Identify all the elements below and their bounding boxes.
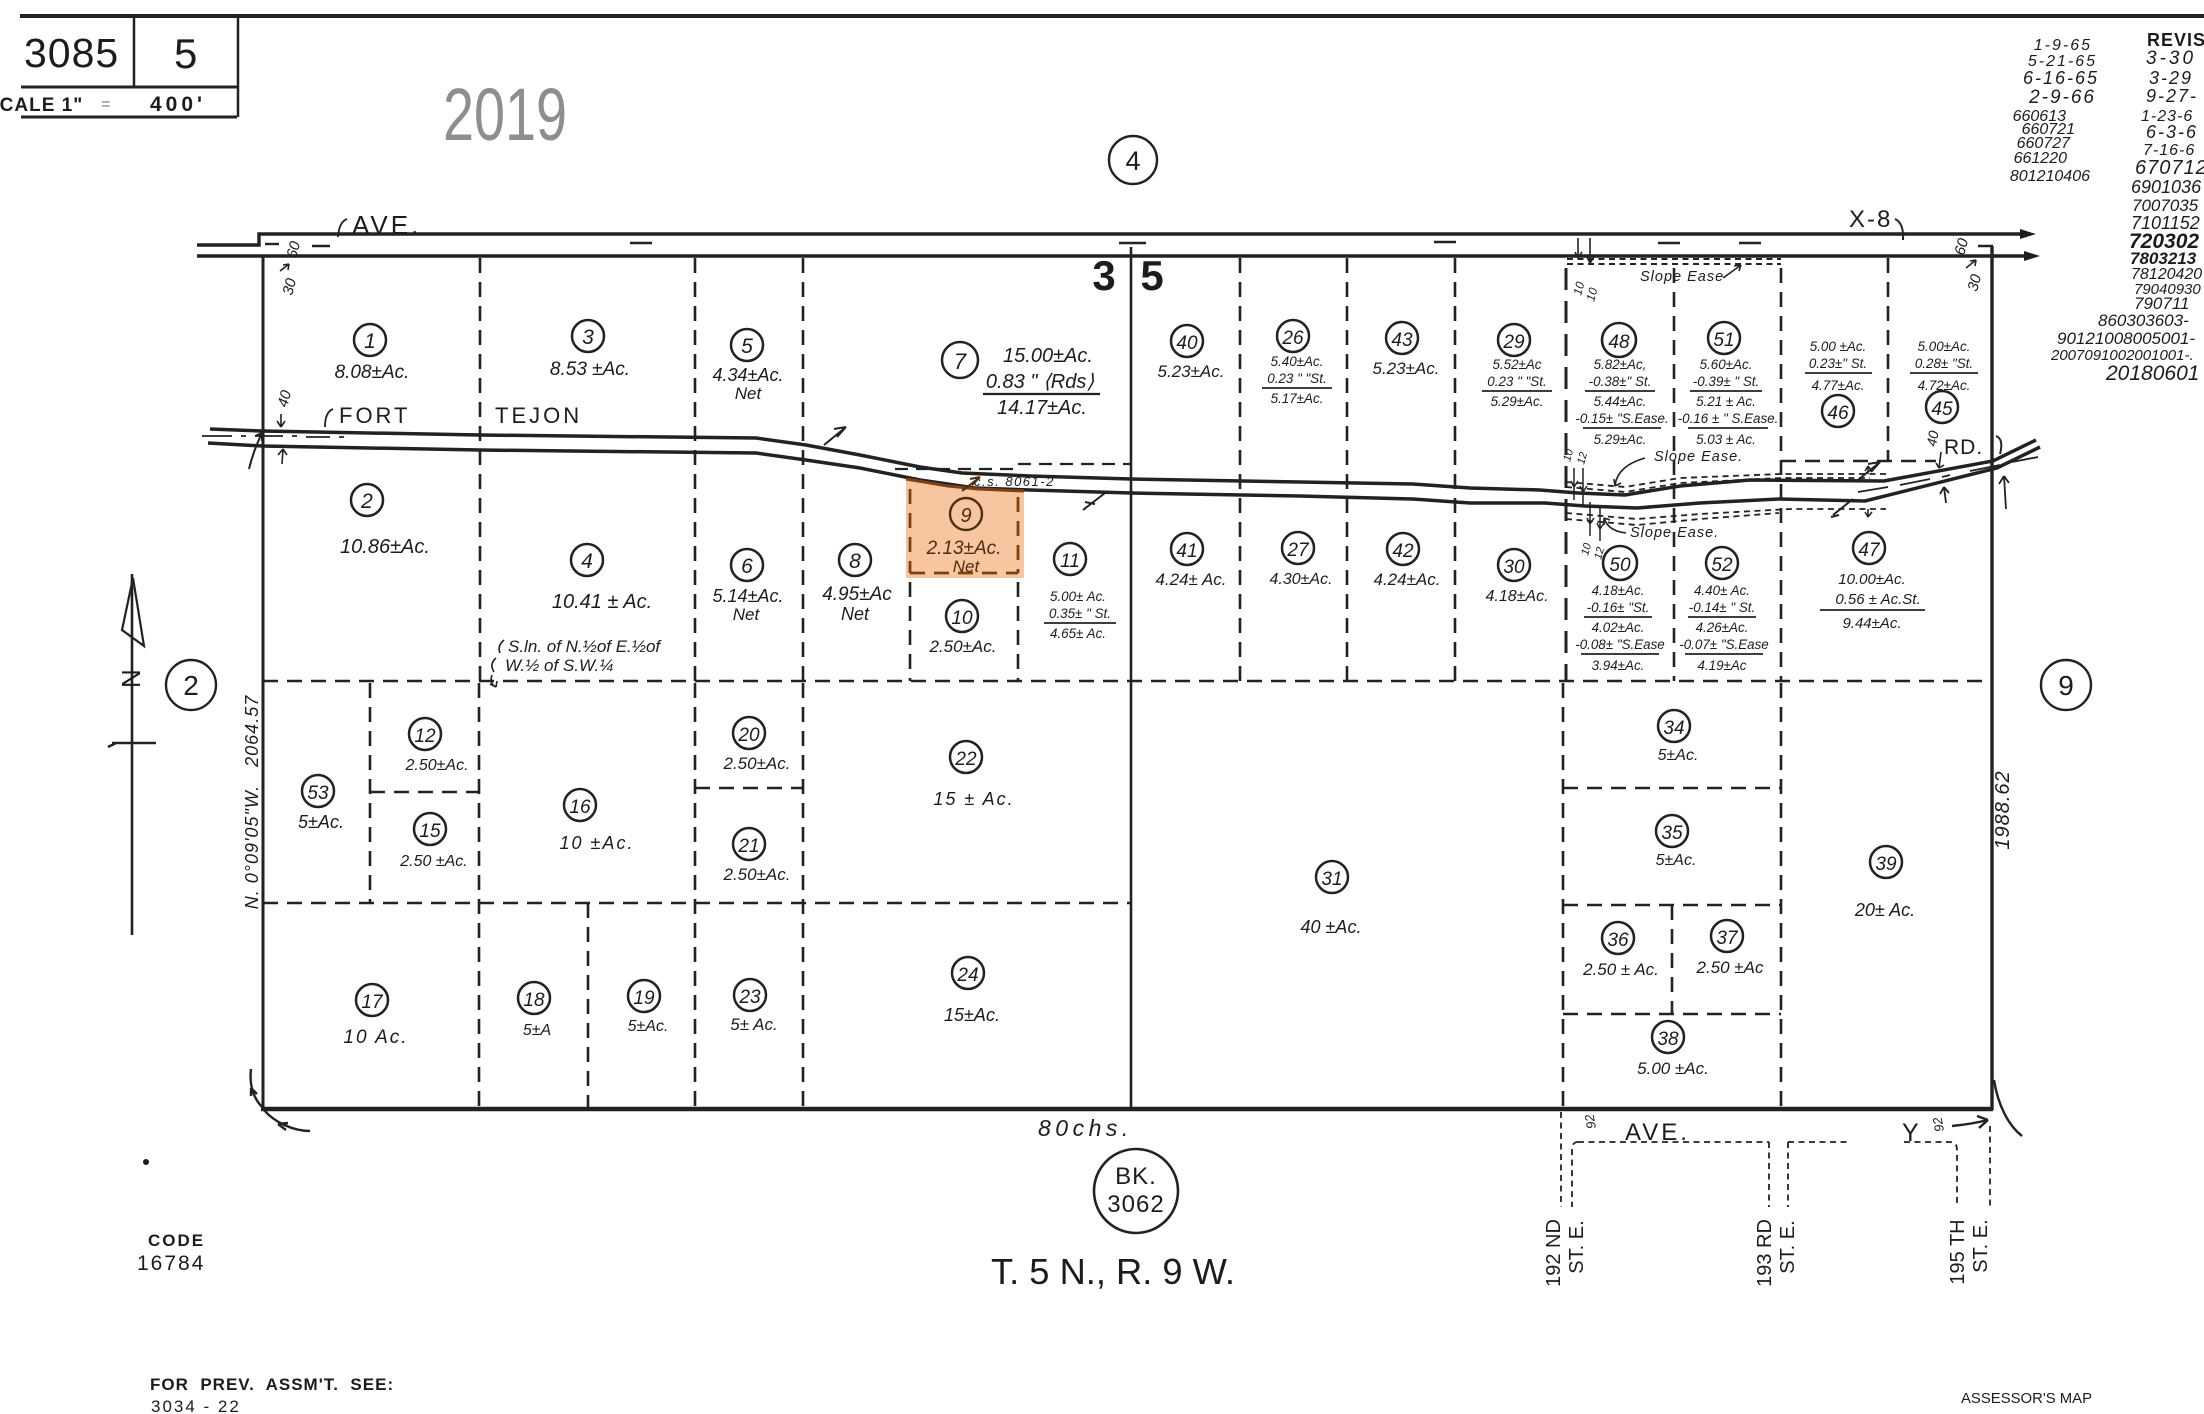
svg-text:c.s. 8061-2: c.s. 8061-2 <box>974 474 1055 489</box>
svg-text:AVE.: AVE. <box>352 210 421 240</box>
svg-text:23: 23 <box>738 987 761 1008</box>
svg-text:5.52±Ac: 5.52±Ac <box>1492 357 1541 372</box>
svg-text:7: 7 <box>954 349 967 374</box>
svg-text:15.00±Ac.: 15.00±Ac. <box>1003 345 1093 367</box>
svg-text:39: 39 <box>1875 854 1897 875</box>
svg-text:3: 3 <box>1092 252 1115 299</box>
svg-text:5.21 ± Ac.: 5.21 ± Ac. <box>1696 394 1756 409</box>
svg-text:5±Ac.: 5±Ac. <box>298 812 344 832</box>
svg-text:34: 34 <box>1663 718 1684 739</box>
svg-text:4.24± Ac.: 4.24± Ac. <box>1155 570 1226 589</box>
svg-text:5.00 ±Ac.: 5.00 ±Ac. <box>1810 339 1866 354</box>
svg-text:192 ND: 192 ND <box>1543 1219 1565 1287</box>
svg-text:4.26±Ac.: 4.26±Ac. <box>1696 620 1749 635</box>
svg-text:27: 27 <box>1286 540 1310 561</box>
svg-text:-0.08± "S.Ease: -0.08± "S.Ease <box>1575 637 1665 652</box>
svg-text:11: 11 <box>1060 551 1080 572</box>
svg-text:5.14±Ac.: 5.14±Ac. <box>713 586 784 606</box>
svg-text:4.34±Ac.: 4.34±Ac. <box>713 365 784 385</box>
svg-text:52: 52 <box>1711 555 1733 576</box>
svg-text:36: 36 <box>1607 930 1629 951</box>
svg-text:90121008005001-: 90121008005001- <box>2057 329 2195 348</box>
svg-text:35: 35 <box>1661 823 1683 844</box>
svg-text:2.13±Ac.: 2.13±Ac. <box>926 538 1002 559</box>
svg-text:195 TH: 195 TH <box>1947 1219 1969 1284</box>
svg-text:10 Ac.: 10 Ac. <box>343 1027 408 1048</box>
svg-text:45: 45 <box>1931 399 1953 420</box>
svg-text:0.28± "St.: 0.28± "St. <box>1915 356 1973 371</box>
svg-text:-0.07± "S.Ease: -0.07± "S.Ease <box>1679 637 1769 652</box>
svg-text:-0.38±" St.: -0.38±" St. <box>1589 374 1652 389</box>
svg-text:8: 8 <box>849 550 861 573</box>
svg-text:38: 38 <box>1657 1029 1679 1050</box>
svg-text:6-3-6: 6-3-6 <box>2146 122 2198 142</box>
svg-text:15: 15 <box>419 821 441 842</box>
svg-text:2-9-66: 2-9-66 <box>2028 87 2096 108</box>
svg-text:4: 4 <box>581 550 593 573</box>
svg-text:TEJON: TEJON <box>495 403 582 428</box>
svg-text:29: 29 <box>1502 332 1525 353</box>
svg-text:2: 2 <box>360 490 373 513</box>
svg-text:42: 42 <box>1392 541 1414 562</box>
svg-text:4.18±Ac.: 4.18±Ac. <box>1485 588 1548 605</box>
svg-text:24: 24 <box>956 965 978 986</box>
svg-text:6: 6 <box>741 555 753 578</box>
svg-text:48: 48 <box>1608 332 1630 353</box>
svg-text:10: 10 <box>951 608 973 629</box>
svg-text:40 ±Ac.: 40 ±Ac. <box>1301 917 1362 937</box>
svg-text:5.00±Ac.: 5.00±Ac. <box>1918 339 1971 354</box>
svg-text:ASSESSOR'S MAP: ASSESSOR'S MAP <box>1961 1390 2092 1407</box>
svg-text:2.50±Ac.: 2.50±Ac. <box>723 754 791 773</box>
svg-text:5±Ac.: 5±Ac. <box>628 1018 669 1035</box>
svg-text:400': 400' <box>150 93 206 116</box>
svg-text:2.50±Ac.: 2.50±Ac. <box>723 865 791 884</box>
svg-text:40: 40 <box>1923 429 1941 447</box>
svg-text:4.65± Ac.: 4.65± Ac. <box>1050 626 1106 641</box>
svg-text:0.56 ± Ac.St.: 0.56 ± Ac.St. <box>1835 591 1920 608</box>
svg-text:16784: 16784 <box>137 1252 205 1275</box>
svg-text:4.19±Ac: 4.19±Ac <box>1697 658 1746 673</box>
svg-text:10.41 ± Ac.: 10.41 ± Ac. <box>552 591 652 613</box>
svg-text:5.29±Ac.: 5.29±Ac. <box>1594 432 1647 447</box>
svg-text:2.50±Ac.: 2.50±Ac. <box>404 757 468 774</box>
svg-text:=: = <box>101 96 110 113</box>
svg-text:0.23 " "St.: 0.23 " "St. <box>1267 371 1326 386</box>
svg-text:S.ln. of N.½of E.½of: S.ln. of N.½of E.½of <box>508 637 662 656</box>
svg-text:3085: 3085 <box>24 30 119 76</box>
svg-text:W.½ of S.W.¼: W.½ of S.W.¼ <box>505 656 613 675</box>
svg-text:16: 16 <box>569 797 591 818</box>
svg-text:3034 - 22: 3034 - 22 <box>151 1397 241 1414</box>
svg-text:40: 40 <box>1176 333 1198 354</box>
svg-text:43: 43 <box>1391 330 1413 351</box>
svg-text:-0.39± " St.: -0.39± " St. <box>1693 374 1759 389</box>
svg-text:BK.: BK. <box>1115 1163 1157 1190</box>
svg-text:2: 2 <box>183 670 199 701</box>
svg-text:18: 18 <box>523 990 545 1011</box>
svg-text:4.18±Ac.: 4.18±Ac. <box>1592 583 1645 598</box>
svg-text:15 ± Ac.: 15 ± Ac. <box>933 789 1014 809</box>
svg-text:21: 21 <box>737 836 759 857</box>
svg-text:10.00±Ac.: 10.00±Ac. <box>1838 571 1905 588</box>
svg-text:5.40±Ac.: 5.40±Ac. <box>1271 354 1324 369</box>
svg-text:801210406: 801210406 <box>2010 168 2090 185</box>
svg-text:4.02±Ac.: 4.02±Ac. <box>1592 620 1645 635</box>
svg-text:6-16-65: 6-16-65 <box>2023 68 2099 88</box>
svg-text:22: 22 <box>954 749 977 770</box>
svg-text:X-8: X-8 <box>1849 206 1892 233</box>
svg-text:1-9-65: 1-9-65 <box>2034 37 2092 54</box>
svg-text:5.60±Ac.: 5.60±Ac. <box>1700 357 1753 372</box>
svg-text:Net: Net <box>735 384 763 403</box>
svg-text:T. 5 N., R. 9 W.: T. 5 N., R. 9 W. <box>991 1251 1235 1292</box>
svg-text:20180601: 20180601 <box>2105 362 2199 385</box>
svg-text:5±Ac.: 5±Ac. <box>1658 747 1699 764</box>
svg-text:ST. E.: ST. E. <box>1777 1220 1799 1273</box>
svg-text:9.44±Ac.: 9.44±Ac. <box>1842 615 1901 632</box>
svg-text:37: 37 <box>1716 928 1739 949</box>
svg-text:2.50±Ac.: 2.50±Ac. <box>929 637 997 656</box>
svg-text:5.00 ±Ac.: 5.00 ±Ac. <box>1637 1059 1709 1078</box>
svg-text:17: 17 <box>361 992 384 1013</box>
svg-text:-0.14± " St.: -0.14± " St. <box>1689 600 1755 615</box>
svg-text:4.95±Ac: 4.95±Ac <box>822 584 892 605</box>
svg-text:5.23±Ac.: 5.23±Ac. <box>1158 362 1225 381</box>
svg-text:1: 1 <box>364 330 376 353</box>
svg-text:4.40± Ac.: 4.40± Ac. <box>1694 583 1750 598</box>
svg-text:5: 5 <box>1140 252 1163 299</box>
svg-text:5: 5 <box>174 30 197 77</box>
svg-text:5.44±Ac.: 5.44±Ac. <box>1594 394 1647 409</box>
svg-text:RD.: RD. <box>1944 436 1983 459</box>
svg-text:15±Ac.: 15±Ac. <box>944 1005 1000 1025</box>
svg-text:CODE: CODE <box>148 1231 205 1250</box>
svg-text:Slope Ease: Slope Ease <box>1640 269 1724 285</box>
svg-text:4.30±Ac.: 4.30±Ac. <box>1269 571 1332 588</box>
svg-text:20: 20 <box>737 725 760 746</box>
svg-text:5±Ac.: 5±Ac. <box>1656 852 1697 869</box>
svg-text:661220: 661220 <box>2014 150 2067 167</box>
svg-text:0.23 " "St.: 0.23 " "St. <box>1487 374 1546 389</box>
svg-text:REVISED: REVISED <box>2147 30 2204 50</box>
svg-text:46: 46 <box>1827 403 1849 424</box>
svg-text:0.35± " St.: 0.35± " St. <box>1049 606 1111 621</box>
svg-text:3: 3 <box>582 326 594 349</box>
svg-text:31: 31 <box>1321 869 1342 890</box>
svg-text:-0.16 ± " S.Ease.: -0.16 ± " S.Ease. <box>1678 411 1779 426</box>
svg-text:4.77±Ac.: 4.77±Ac. <box>1812 378 1865 393</box>
svg-text:ST. E.: ST. E. <box>1970 1219 1992 1272</box>
svg-text:8.08±Ac.: 8.08±Ac. <box>335 362 410 383</box>
svg-text:10.86±Ac.: 10.86±Ac. <box>340 536 430 558</box>
svg-text:30: 30 <box>1503 557 1525 578</box>
svg-text:3-29: 3-29 <box>2149 68 2193 88</box>
svg-text:5.03 ± Ac.: 5.03 ± Ac. <box>1696 432 1756 447</box>
svg-text:670712: 670712 <box>2135 157 2204 179</box>
svg-text:5.23±Ac.: 5.23±Ac. <box>1373 359 1440 378</box>
svg-text:26: 26 <box>1281 328 1304 349</box>
svg-text:FORT: FORT <box>339 403 410 428</box>
svg-text:9: 9 <box>960 505 971 527</box>
svg-text:ST. E.: ST. E. <box>1566 1220 1588 1273</box>
svg-text:51: 51 <box>1713 330 1734 351</box>
svg-text:5.82±Ac,: 5.82±Ac, <box>1594 357 1647 372</box>
svg-text:0.23±" St.: 0.23±" St. <box>1809 356 1867 371</box>
svg-text:-0.15± "S.Ease.: -0.15± "S.Ease. <box>1575 411 1668 426</box>
svg-text:53: 53 <box>307 783 329 804</box>
svg-text:1988.62: 1988.62 <box>1992 770 2014 849</box>
svg-text:3.94±Ac.: 3.94±Ac. <box>1592 658 1645 673</box>
svg-text:47: 47 <box>1858 540 1881 561</box>
svg-text:19: 19 <box>633 988 655 1009</box>
svg-text:5± Ac.: 5± Ac. <box>730 1015 777 1034</box>
svg-text:FOR PREV. ASSM'T. SEE:: FOR PREV. ASSM'T. SEE: <box>150 1375 394 1394</box>
svg-text:20± Ac.: 20± Ac. <box>1854 900 1915 920</box>
svg-text:3062: 3062 <box>1107 1191 1164 1218</box>
svg-text:80chs.: 80chs. <box>1038 1115 1133 1141</box>
svg-text:2.50 ± Ac.: 2.50 ± Ac. <box>1582 960 1659 979</box>
svg-text:0.83 " ⟨Rds⟩: 0.83 " ⟨Rds⟩ <box>986 371 1095 393</box>
svg-text:860303603-: 860303603- <box>2098 311 2189 330</box>
svg-text:41: 41 <box>1176 541 1197 562</box>
svg-text:9-27-: 9-27- <box>2146 86 2198 106</box>
svg-text:3-30: 3-30 <box>2146 48 2196 69</box>
svg-text:5.17±Ac.: 5.17±Ac. <box>1271 391 1324 406</box>
svg-text:SCALE 1": SCALE 1" <box>0 95 83 116</box>
svg-text:10 ±Ac.: 10 ±Ac. <box>560 833 635 853</box>
svg-text:5.00± Ac.: 5.00± Ac. <box>1050 589 1106 604</box>
svg-text:Net: Net <box>953 557 981 576</box>
svg-text:12: 12 <box>414 726 436 747</box>
svg-text:-0.16± "St.: -0.16± "St. <box>1587 600 1650 615</box>
svg-text:N. 0°09'05"W. 2064.57: N. 0°09'05"W. 2064.57 <box>242 695 262 909</box>
svg-text:2019: 2019 <box>443 73 567 156</box>
svg-text:5: 5 <box>741 335 753 358</box>
svg-text:2.50 ±Ac: 2.50 ±Ac <box>1696 958 1764 977</box>
svg-text:Slope Ease.: Slope Ease. <box>1654 449 1743 465</box>
svg-text:14.17±Ac.: 14.17±Ac. <box>997 397 1087 419</box>
svg-text:2.50 ±Ac.: 2.50 ±Ac. <box>399 853 467 870</box>
svg-text:N: N <box>116 669 146 688</box>
svg-text:Net: Net <box>841 604 870 624</box>
svg-text:4: 4 <box>1125 146 1140 176</box>
svg-text:50: 50 <box>1609 555 1631 576</box>
svg-text:8.53 ±Ac.: 8.53 ±Ac. <box>550 359 630 380</box>
svg-text:193 RD: 193 RD <box>1754 1219 1776 1287</box>
svg-text:5.29±Ac.: 5.29±Ac. <box>1491 394 1544 409</box>
svg-text:6901036: 6901036 <box>2131 177 2202 197</box>
svg-text:4.24±Ac.: 4.24±Ac. <box>1374 570 1441 589</box>
svg-text:5±A: 5±A <box>523 1022 551 1039</box>
svg-text:9: 9 <box>2058 670 2074 701</box>
svg-text:Net: Net <box>733 605 761 624</box>
